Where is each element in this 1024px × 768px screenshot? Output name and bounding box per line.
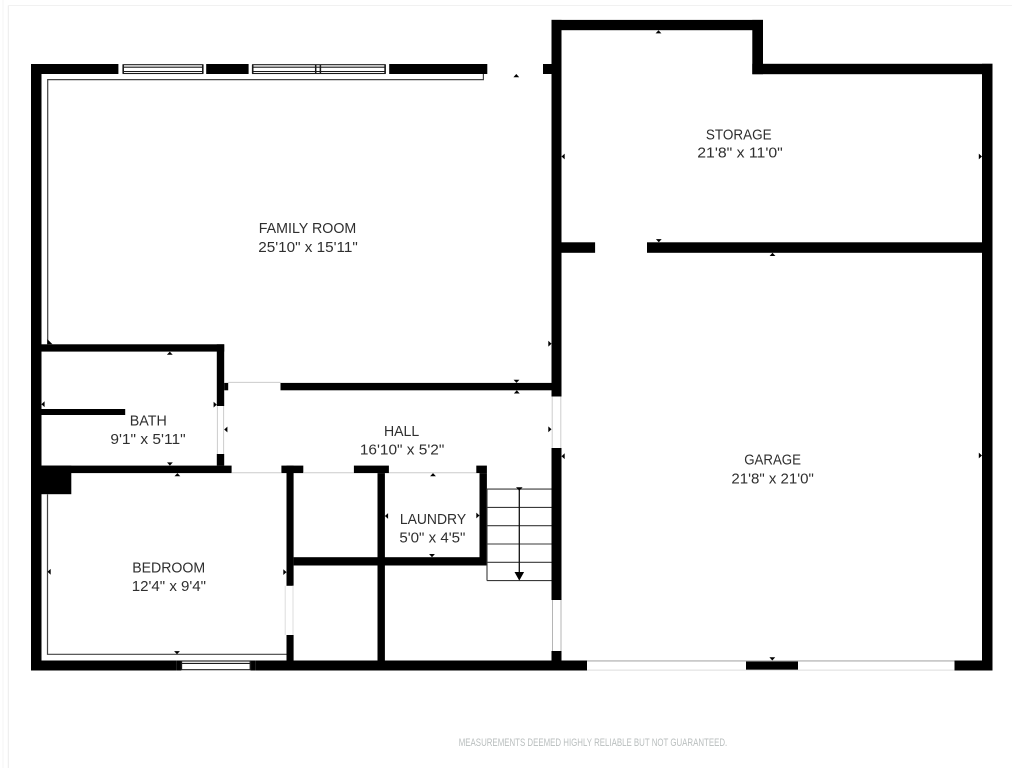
svg-text:HALL: HALL xyxy=(384,423,419,440)
svg-text:STORAGE: STORAGE xyxy=(706,127,772,144)
svg-text:BEDROOM: BEDROOM xyxy=(132,559,205,576)
svg-text:21'8" x 21'0": 21'8" x 21'0" xyxy=(731,471,814,488)
svg-text:LAUNDRY: LAUNDRY xyxy=(400,511,466,528)
svg-text:BATH: BATH xyxy=(130,412,167,429)
svg-text:25'10" x 15'11": 25'10" x 15'11" xyxy=(258,239,358,256)
svg-text:5'0" x 4'5": 5'0" x 4'5" xyxy=(399,529,465,546)
svg-text:12'4" x 9'4": 12'4" x 9'4" xyxy=(132,578,206,595)
svg-text:16'10" x 5'2": 16'10" x 5'2" xyxy=(360,441,445,458)
svg-text:FAMILY ROOM: FAMILY ROOM xyxy=(259,220,357,237)
svg-text:21'8" x 11'0": 21'8" x 11'0" xyxy=(697,145,783,162)
svg-text:GARAGE: GARAGE xyxy=(744,452,801,469)
svg-text:MEASUREMENTS DEEMED HIGHLY REL: MEASUREMENTS DEEMED HIGHLY RELIABLE BUT … xyxy=(459,737,728,749)
svg-text:9'1" x 5'11": 9'1" x 5'11" xyxy=(110,431,185,448)
